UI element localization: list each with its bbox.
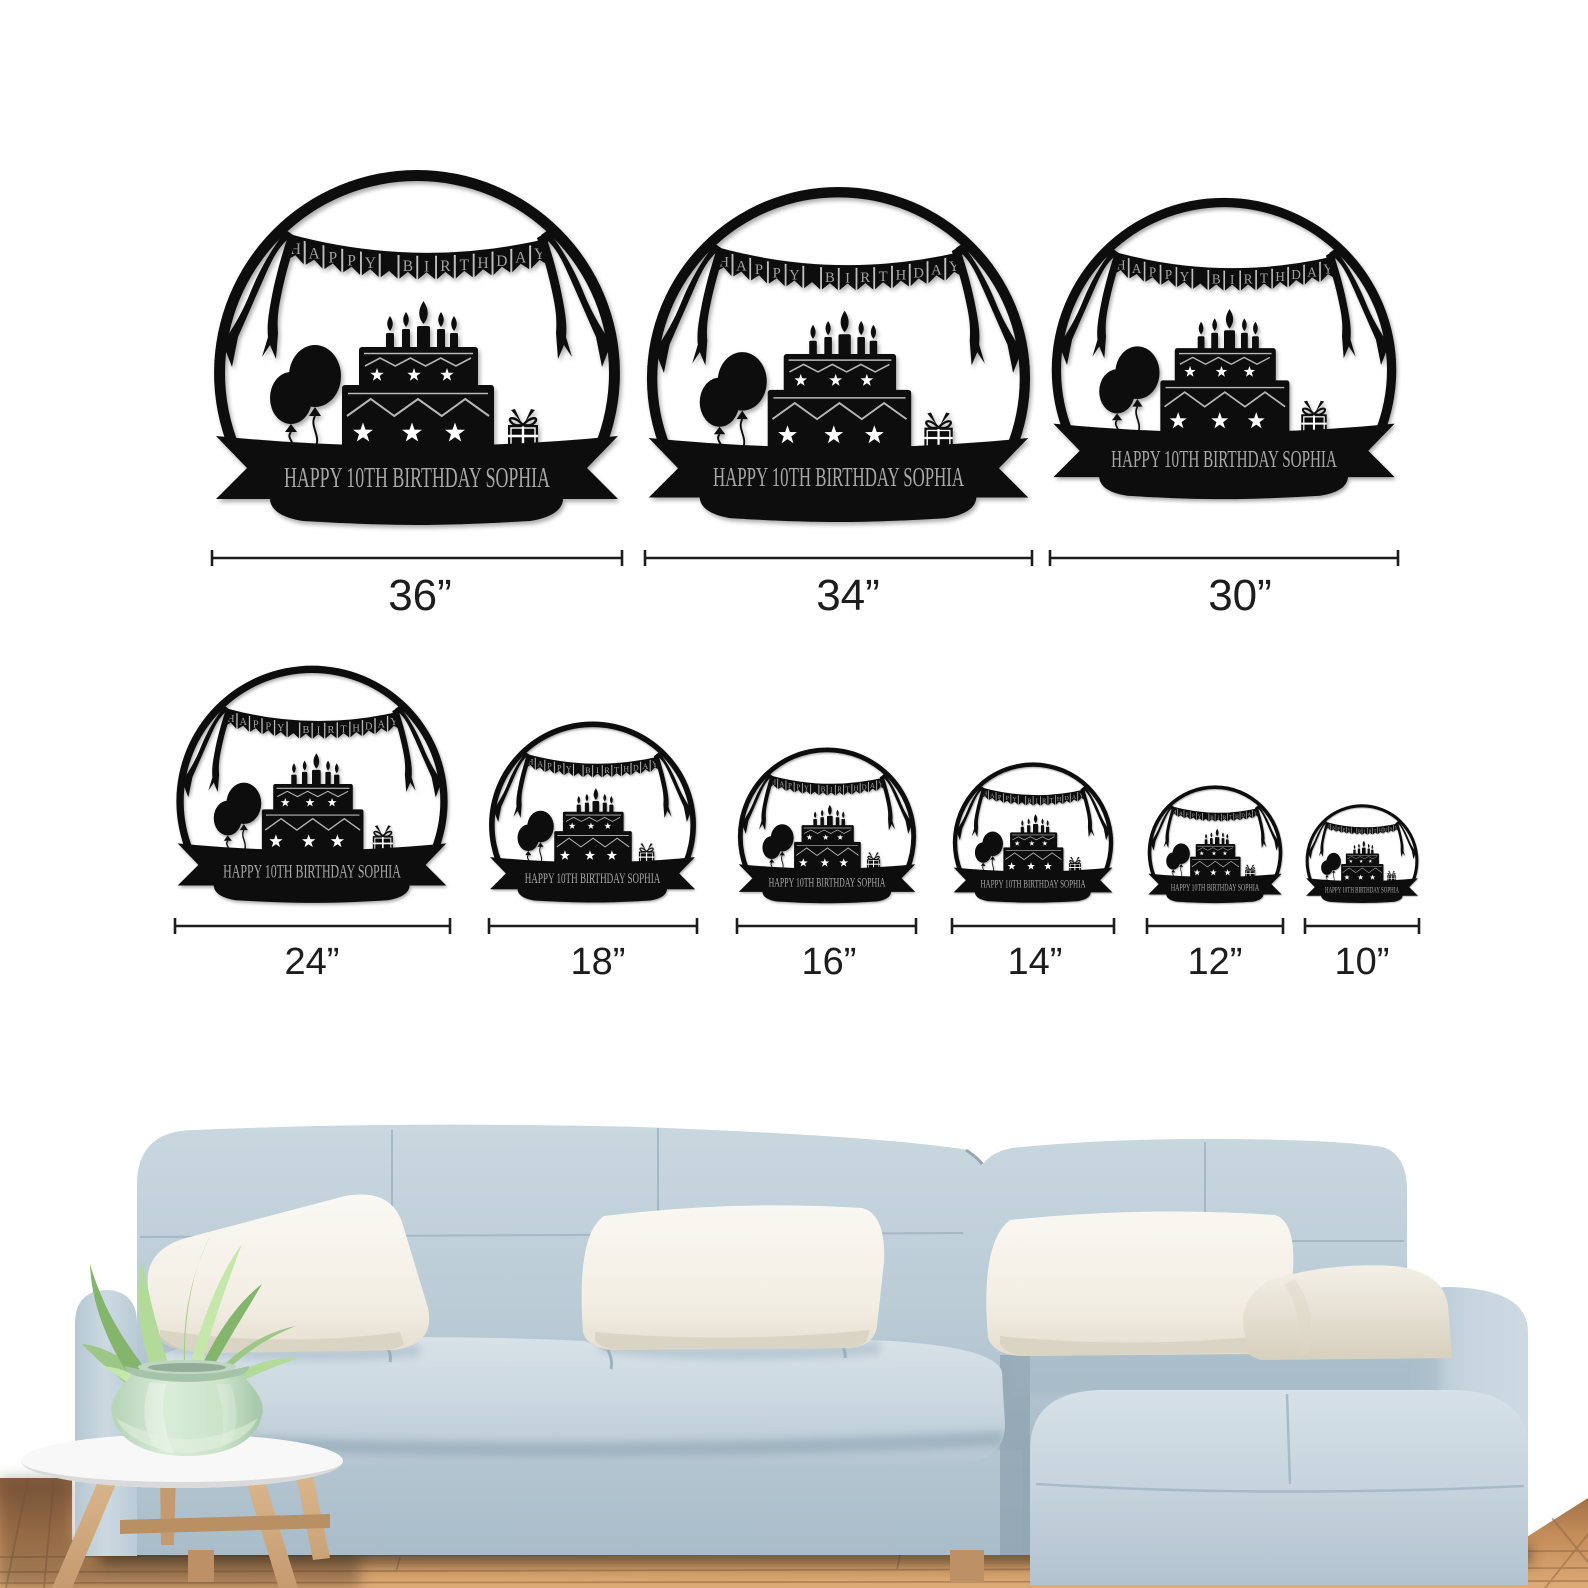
svg-text:18”: 18” <box>571 941 626 983</box>
svg-text:30”: 30” <box>1208 571 1272 620</box>
svg-text:10”: 10” <box>1335 941 1390 983</box>
svg-text:16”: 16” <box>802 941 857 983</box>
svg-text:34”: 34” <box>816 571 880 620</box>
svg-text:14”: 14” <box>1008 941 1063 983</box>
svg-text:24”: 24” <box>285 941 340 983</box>
svg-text:12”: 12” <box>1188 941 1243 983</box>
svg-text:36”: 36” <box>388 571 452 620</box>
